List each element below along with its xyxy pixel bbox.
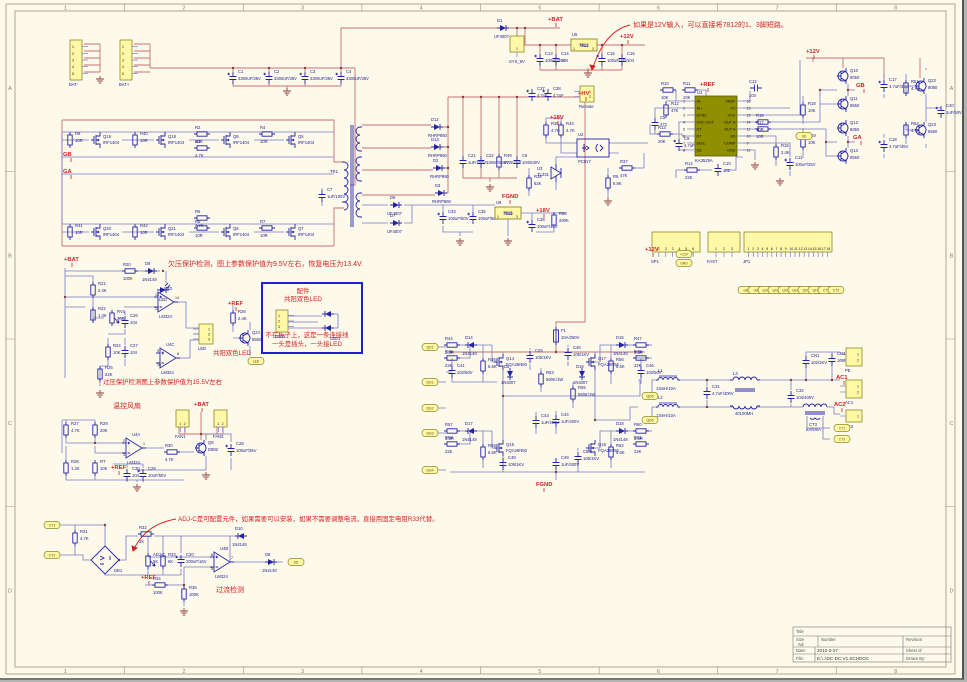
svg-text:R42: R42 <box>140 223 148 228</box>
component-r7[interactable]: R710R <box>259 219 275 238</box>
net-port-ct2[interactable]: CT2 <box>834 435 850 442</box>
component-r43[interactable]: R434.7K <box>559 121 575 138</box>
component-c10[interactable]: C10102 <box>715 161 732 176</box>
svg-text:R37: R37 <box>620 159 628 164</box>
svg-text:+12V: +12V <box>645 247 659 253</box>
net-label--12v[interactable]: +12V <box>620 34 634 44</box>
svg-text:PE: PE <box>845 368 851 373</box>
svg-text:2: 2 <box>123 439 125 443</box>
svg-text:C16: C16 <box>627 51 635 56</box>
svg-text:R61: R61 <box>634 435 642 440</box>
svg-text:C22: C22 <box>486 153 494 158</box>
component-q17[interactable]: Q17FQA28N50 <box>586 354 620 370</box>
component-l3[interactable]: L340100MH <box>730 371 760 416</box>
svg-text:7815: 7815 <box>503 211 513 216</box>
box-led1-label: LED1 <box>330 336 341 341</box>
ground-symbol <box>283 88 291 95</box>
net-labels-layer[interactable]: +BAT+12V+HV+REF+18VFGND+18V+12VGBGAGBGA+… <box>63 17 865 585</box>
component-c45[interactable]: C45105/1KV <box>565 345 590 360</box>
annotation-undervoltage-note: 欠压保护检测，图上参数保护值为9.5V左右，恢复电压为13.4V. <box>168 259 363 268</box>
svg-text:1N4148: 1N4148 <box>613 351 628 356</box>
svg-text:LED: LED <box>198 346 206 351</box>
component-c28[interactable]: C28100uF/35V <box>226 441 257 456</box>
component-l1[interactable]: L113mH/10A <box>656 368 680 391</box>
component-c14[interactable]: C14104 <box>553 51 570 66</box>
net-label--bat[interactable]: +BAT <box>64 257 79 267</box>
svg-text:+BAT: +BAT <box>548 17 563 23</box>
svg-text:C27: C27 <box>130 343 138 348</box>
svg-text:R18: R18 <box>808 101 816 106</box>
component-d16[interactable]: D161N4007 <box>573 364 588 385</box>
svg-text:4: 4 <box>762 247 764 251</box>
net-port-qg4[interactable]: QG4 <box>422 466 438 473</box>
svg-text:10K: 10K <box>808 140 816 145</box>
svg-text:C28: C28 <box>236 441 244 446</box>
component-r59[interactable]: R595.6K <box>481 443 497 460</box>
component-q19[interactable]: Q19IRF1404 <box>91 132 120 148</box>
svg-text:A: A <box>950 86 954 92</box>
svg-text:8550: 8550 <box>850 103 860 108</box>
net-port-ct2[interactable]: CT2 <box>44 551 60 558</box>
title-block: Title Size A2 Number Revision Date: 2012… <box>793 627 951 662</box>
svg-text:D15: D15 <box>616 335 624 340</box>
component-r41[interactable]: R4110R <box>68 223 84 240</box>
component-q13[interactable]: Q138550 <box>837 148 860 164</box>
component-adj-c[interactable]: ADJ-C5K <box>146 552 166 569</box>
svg-text:C40: C40 <box>946 103 954 108</box>
component-u4d[interactable]: U4DLM324131214 <box>154 286 179 319</box>
component-c35[interactable]: C35100uF/50V <box>468 209 499 224</box>
svg-text:13mH/10A: 13mH/10A <box>656 413 676 418</box>
svg-text:R45: R45 <box>445 349 453 354</box>
svg-text:2: 2 <box>683 107 685 111</box>
svg-text:2: 2 <box>184 422 186 426</box>
svg-text:1: 1 <box>683 100 685 104</box>
component-d14[interactable]: D141N4148 <box>462 335 477 356</box>
svg-text:10R: 10R <box>260 233 268 238</box>
component-d2[interactable]: D2RHRP860 <box>430 158 450 179</box>
component-r13[interactable]: R1320K <box>657 125 673 144</box>
component-d10[interactable]: D101N4148 <box>232 526 247 547</box>
component-d12[interactable]: D12RHRP860 <box>428 117 448 138</box>
component-r58[interactable]: R5822K <box>444 435 460 454</box>
svg-text:10R: 10R <box>140 230 148 235</box>
component-d13[interactable]: D13RHRP860 <box>428 137 448 158</box>
component-q7[interactable]: Q7IRF1404 <box>286 224 315 240</box>
component-c20[interactable]: C20100uF/16V <box>176 552 207 567</box>
svg-text:1: 1 <box>64 6 67 12</box>
component-c1[interactable]: C13300uF/35V <box>228 69 262 84</box>
component-d1[interactable]: D1UF4007 <box>494 18 510 39</box>
net-label--ref[interactable]: +REF <box>141 575 156 585</box>
component-r40[interactable]: R4010R <box>133 131 149 148</box>
component-q6[interactable]: Q6IRF1404 <box>221 224 250 240</box>
svg-text:BAT-: BAT- <box>69 82 79 87</box>
svg-text:4: 4 <box>122 65 124 69</box>
svg-text:SYS_9V: SYS_9V <box>509 59 525 64</box>
net-port-ct1[interactable]: CT1 <box>44 521 60 528</box>
svg-text:102/50V: 102/50V <box>457 370 473 375</box>
connector-fast[interactable]: 123FAST <box>707 232 740 264</box>
net-port-qg3[interactable]: QG3 <box>422 429 438 436</box>
svg-text:C48: C48 <box>508 455 516 460</box>
svg-text:VCC: VCC <box>727 114 735 118</box>
net-label-gb[interactable]: GB <box>63 152 72 162</box>
svg-text:C29: C29 <box>148 466 156 471</box>
svg-text:5: 5 <box>538 6 541 12</box>
components-layer[interactable]: C13300uF/35VC23300uF/35VC33300uF/35VC433… <box>64 18 962 602</box>
net-port-sd[interactable]: SD <box>288 558 304 565</box>
svg-text:AC1: AC1 <box>845 400 854 405</box>
net-label--bat[interactable]: +BAT <box>548 17 563 27</box>
svg-text:R47: R47 <box>634 336 642 341</box>
svg-text:C3: C3 <box>310 69 316 74</box>
svg-text:OSC OUT: OSC OUT <box>697 121 715 125</box>
svg-text:105/1KV: 105/1KV <box>535 355 551 360</box>
net-port-qd1[interactable]: QD1 <box>422 343 438 350</box>
svg-text:CN1: CN1 <box>811 353 820 358</box>
svg-text:IRF1404: IRF1404 <box>298 232 315 237</box>
tb-number-label: Number <box>821 637 836 642</box>
svg-text:OUT B: OUT B <box>724 121 736 125</box>
component-r15[interactable]: R152.4K <box>774 143 790 160</box>
svg-text:CT: CT <box>697 128 703 132</box>
connector-fan2[interactable]: 12FAN2 <box>213 410 227 439</box>
box-title: 配件 <box>297 286 310 295</box>
net-label--bat[interactable]: +BAT <box>194 402 209 412</box>
net-port-led[interactable]: LED <box>248 357 264 364</box>
svg-text:R40: R40 <box>140 131 148 136</box>
svg-text:2: 2 <box>222 422 224 426</box>
component-c11[interactable]: C11100uF/25V <box>785 155 816 170</box>
component-c30[interactable]: C30104 <box>124 466 141 481</box>
svg-text:R15: R15 <box>781 143 789 148</box>
component-d3[interactable]: D3RHRP860 <box>432 183 452 204</box>
svg-text:100uF/35V: 100uF/35V <box>236 448 257 453</box>
component-c12[interactable]: C12104 <box>749 79 762 98</box>
svg-text:QG4: QG4 <box>426 469 433 473</box>
component-r14[interactable]: R1422K <box>684 161 700 180</box>
annotation-12v-note: 如果是12V输入，可以直接将7812的1、3脚短路。 <box>633 20 788 29</box>
component-r50[interactable]: R50200K <box>552 211 569 228</box>
component-q20[interactable]: Q20IRF1404 <box>91 224 120 240</box>
pwm-controller-ic[interactable]: U1KA3525AIN-1IN+2SYNC3OSC OUT4CT5RT6DISC… <box>683 90 751 163</box>
component-r37[interactable]: R3747K <box>619 159 635 178</box>
component-q10[interactable]: Q108050 <box>837 68 860 84</box>
svg-text:UF4007: UF4007 <box>387 229 403 234</box>
svg-text:12: 12 <box>155 307 159 311</box>
component-f1[interactable]: F110A/250V <box>554 327 580 345</box>
component-r46[interactable]: R465.6K <box>481 357 497 374</box>
svg-text:+BAT: +BAT <box>64 257 79 263</box>
component-q12[interactable]: Q128050 <box>837 120 860 136</box>
net-label--12v[interactable]: +12V <box>806 49 820 59</box>
component-r32[interactable]: R322K <box>138 525 154 544</box>
component-c27[interactable]: C27104 <box>122 343 139 358</box>
component-c38[interactable]: C384.7uF <box>543 86 565 101</box>
svg-text:Q9: Q9 <box>208 440 214 445</box>
svg-text:1N4148: 1N4148 <box>262 568 277 573</box>
component-c29[interactable]: C2910uF/50V <box>138 466 167 481</box>
svg-text:R25: R25 <box>105 365 113 370</box>
component-c40[interactable]: C401uF/50V <box>936 103 963 118</box>
net-port-qg2[interactable]: QG2 <box>422 404 438 411</box>
component-r27[interactable]: R274.7K <box>64 421 80 438</box>
svg-text:100uF/50V: 100uF/50V <box>448 216 469 221</box>
svg-text:8550: 8550 <box>252 337 262 342</box>
tb-revision-label: Revision <box>906 637 923 642</box>
svg-text:104: 104 <box>561 58 569 63</box>
svg-text:6: 6 <box>683 135 685 139</box>
component-r53[interactable]: R53560K/1W <box>539 370 563 387</box>
svg-text:C20: C20 <box>186 552 194 557</box>
net-label-ga[interactable]: GA <box>853 135 863 145</box>
component-r38[interactable]: R3862K <box>527 174 543 191</box>
component-c31[interactable]: C314.7uF/400V <box>704 384 734 399</box>
net-port-qg1[interactable]: QG1 <box>422 378 438 385</box>
svg-text:1: 1 <box>857 353 859 357</box>
svg-text:104: 104 <box>749 93 757 98</box>
component-r24[interactable]: R2410K <box>106 343 122 360</box>
component-q14[interactable]: Q14FQA28N50 <box>494 354 528 370</box>
component-q24[interactable]: Q248550 <box>239 330 262 346</box>
svg-text:L1: L1 <box>658 368 663 373</box>
component-r18[interactable]: R1810K <box>801 101 817 118</box>
svg-text:6: 6 <box>657 6 660 12</box>
component-d15[interactable]: D151N4148 <box>613 335 628 356</box>
component-r61[interactable]: R6122K <box>633 435 649 454</box>
svg-text:17: 17 <box>822 247 826 251</box>
component-c25[interactable]: C25105/1KV <box>527 348 552 363</box>
svg-text:BAT+: BAT+ <box>119 82 130 87</box>
component-r9[interactable]: R910R <box>68 131 83 148</box>
svg-text:VC: VC <box>730 107 736 111</box>
svg-text:10R: 10R <box>75 138 83 143</box>
ic-ka3525a[interactable]: U1KA3525AIN-1IN+2SYNC3OSC OUT4CT5RT6DISC… <box>683 90 751 163</box>
svg-text:2: 2 <box>72 52 74 56</box>
svg-text:Q17: Q17 <box>598 356 607 361</box>
svg-text:10: 10 <box>789 247 793 251</box>
svg-text:Q13: Q13 <box>850 148 859 153</box>
component-q16[interactable]: Q16FQA28N50 <box>586 440 620 456</box>
ground-symbol <box>456 238 464 245</box>
component-u5[interactable]: U57812781213 <box>571 32 597 51</box>
connector-fan1[interactable]: 12FAN1 <box>175 410 189 439</box>
tb-date-value: 2012-3-27 <box>817 648 838 653</box>
svg-text:D882: D882 <box>208 447 219 452</box>
schematic-editor-canvas: 1122334455667788AABBCCDD 配件 共阳双色LED 不在板子… <box>0 0 967 682</box>
svg-text:R8: R8 <box>613 174 619 179</box>
component-c7[interactable]: C71uF/100V <box>319 187 346 202</box>
svg-text:14: 14 <box>175 296 179 300</box>
component-l2[interactable]: L213mH/10A <box>656 395 680 418</box>
svg-text:GB: GB <box>856 83 865 89</box>
svg-text:1N4148: 1N4148 <box>232 542 247 547</box>
svg-text:1uF/400V: 1uF/400V <box>561 419 579 424</box>
net-port-qd6[interactable]: QD6 <box>642 416 658 423</box>
component-r21[interactable]: R212.4K <box>91 281 107 298</box>
connector-remote[interactable]: 12Remote <box>574 86 594 109</box>
svg-text:104: 104 <box>132 473 140 478</box>
net-label-ac2[interactable]: AC2 <box>834 402 846 412</box>
svg-text:2: 2 <box>857 391 859 395</box>
net-port--12v[interactable]: +12V <box>676 250 692 257</box>
svg-text:3: 3 <box>301 669 304 675</box>
svg-text:Q5: Q5 <box>298 134 304 139</box>
svg-text:15: 15 <box>812 247 816 251</box>
svg-text:10uF/50V: 10uF/50V <box>148 473 166 478</box>
svg-text:8550: 8550 <box>850 155 860 160</box>
svg-text:6: 6 <box>211 553 213 557</box>
svg-text:SD: SD <box>294 561 299 565</box>
svg-text:U4C: U4C <box>166 342 174 347</box>
svg-text:F1: F1 <box>561 328 567 333</box>
svg-text:2: 2 <box>182 6 185 12</box>
component-u2[interactable]: U2PC817 <box>577 132 609 164</box>
svg-text:D: D <box>8 588 12 594</box>
component-q18[interactable]: Q18IRF1404 <box>156 132 185 148</box>
net-port-ct1[interactable]: CT1 <box>834 424 850 431</box>
svg-text:Q22: Q22 <box>928 78 937 83</box>
net-port-qd5[interactable]: QD5 <box>642 392 658 399</box>
component-d8[interactable]: D81N4148 <box>262 552 277 573</box>
net-label--12v[interactable]: +12V <box>645 247 659 257</box>
net-label-ga[interactable]: GA <box>63 169 73 179</box>
svg-text:LM324: LM324 <box>215 574 228 579</box>
component-c32[interactable]: C32104/400V <box>788 388 815 403</box>
connector-bat-[interactable]: 12345BAT+ <box>119 40 138 87</box>
component-r55[interactable]: R55560K/1W <box>571 385 595 402</box>
component-c16[interactable]: C16104 <box>619 51 636 66</box>
component-r31[interactable]: R314.7K <box>73 529 89 546</box>
component-c50[interactable]: C50105/1KV <box>575 449 600 464</box>
svg-text:FQA28N50: FQA28N50 <box>598 448 620 453</box>
svg-text:1N4148: 1N4148 <box>142 277 157 282</box>
component-c33[interactable]: C33100uF/50V <box>438 209 469 224</box>
component-d17[interactable]: D171N4148 <box>462 421 477 442</box>
svg-text:12: 12 <box>747 149 751 153</box>
ground-symbol <box>180 608 188 615</box>
svg-text:10R: 10R <box>75 230 83 235</box>
svg-text:10K: 10K <box>661 95 669 100</box>
component-r28[interactable]: R281.2K <box>64 459 80 476</box>
component-c43[interactable]: C431uF/400V <box>533 413 560 428</box>
svg-text:4.7K: 4.7K <box>71 428 80 433</box>
component-u4c[interactable]: U4CLM3249108 <box>156 342 180 375</box>
component-u4a[interactable]: U4ALM324231 <box>122 432 146 465</box>
connector-jp1[interactable]: 123456789101112131415161718JP1 <box>743 232 832 264</box>
ground-symbol <box>504 238 512 245</box>
component-u6[interactable]: U67815781513 <box>495 200 521 219</box>
component-r10[interactable]: R1010K <box>660 81 676 100</box>
schematic-sheet[interactable]: 1122334455667788AABBCCDD 配件 共阳双色LED 不在板子… <box>0 0 964 680</box>
svg-text:C31: C31 <box>712 384 720 389</box>
net-port-sd[interactable]: SD <box>796 132 812 139</box>
component-c49[interactable]: C491uF/400V <box>553 455 580 470</box>
component-r12[interactable]: R1247K <box>664 101 680 118</box>
component-c3[interactable]: C33300uF/35V <box>300 69 334 84</box>
connector-bat-[interactable]: 12345BAT- <box>69 40 88 87</box>
svg-text:R14: R14 <box>685 161 693 166</box>
svg-text:DISC: DISC <box>697 142 706 146</box>
svg-text:4: 4 <box>420 669 423 675</box>
net-port-ct2[interactable]: CT2 <box>828 286 844 293</box>
component-u3[interactable]: U3TL431 <box>537 164 561 182</box>
svg-text:1: 1 <box>748 247 750 251</box>
component-rt[interactable]: RT10K <box>93 459 108 476</box>
component-r4[interactable]: R410R <box>259 125 275 144</box>
svg-text:8050: 8050 <box>850 75 860 80</box>
component-tr1[interactable]: TR1 <box>330 125 362 227</box>
svg-text:R21: R21 <box>98 281 106 286</box>
svg-text:U4A: U4A <box>132 432 140 437</box>
net-label-gb[interactable]: GB <box>856 83 865 93</box>
svg-text:R11: R11 <box>683 81 691 86</box>
svg-text:DB1: DB1 <box>114 568 123 573</box>
svg-text:C10: C10 <box>723 161 731 166</box>
svg-text:8550: 8550 <box>928 129 938 134</box>
component-d18[interactable]: D181N4148 <box>613 421 628 442</box>
svg-text:R31: R31 <box>80 529 88 534</box>
component-r39[interactable]: R394.7K <box>544 121 560 138</box>
svg-text:2.4K: 2.4K <box>781 150 790 155</box>
svg-text:R6: R6 <box>195 219 201 224</box>
component-c2[interactable]: C23300uF/35V <box>264 69 298 84</box>
net-label-fgnd[interactable]: FGND <box>502 194 518 204</box>
svg-text:C4: C4 <box>346 69 352 74</box>
connector-sys-9v[interactable]: 1SYS_9V <box>509 36 525 64</box>
component-c4[interactable]: C43300uF/35V <box>336 69 370 84</box>
component-r35[interactable]: R35100K <box>182 585 199 602</box>
component-q21[interactable]: Q21IRF1404 <box>156 224 185 240</box>
component-q5[interactable]: Q5IRF1404 <box>286 132 315 148</box>
component-r20[interactable]: R20100K <box>122 262 138 281</box>
svg-text:R44: R44 <box>445 336 453 341</box>
ground-symbol <box>584 70 592 77</box>
component-d9[interactable]: D91N4148 <box>142 261 157 282</box>
component-q8[interactable]: Q8IRF1404 <box>221 132 250 148</box>
svg-text:1: 1 <box>143 442 145 446</box>
component-d7[interactable]: D7UF4007 <box>387 213 403 234</box>
svg-text:20K: 20K <box>658 139 666 144</box>
svg-text:3: 3 <box>278 325 280 329</box>
net-label-fgnd[interactable]: FGND <box>536 482 552 492</box>
component-q11[interactable]: Q118550 <box>837 96 860 112</box>
svg-text:D5: D5 <box>504 364 510 369</box>
svg-text:1N4007: 1N4007 <box>573 380 588 385</box>
component-c36[interactable]: C36100uF/35V <box>527 217 558 232</box>
component-q15[interactable]: Q15FQA28N50 <box>494 440 528 456</box>
svg-text:10K: 10K <box>100 466 108 471</box>
svg-text:7: 7 <box>775 247 777 251</box>
component-q9[interactable]: Q9D882 <box>195 440 219 456</box>
svg-text:12: 12 <box>799 247 803 251</box>
net-port-gnd[interactable]: GND <box>676 259 692 266</box>
component-c18[interactable]: C184.7uF/35V <box>879 137 909 152</box>
svg-text:2.4K: 2.4K <box>98 288 107 293</box>
component-r29[interactable]: R2920K <box>93 421 109 438</box>
component-r30[interactable]: R304.7K <box>164 443 180 462</box>
component-r6[interactable]: R610R <box>194 219 210 238</box>
ground-symbol <box>96 76 104 83</box>
component-r26[interactable]: R262.4K <box>231 309 247 326</box>
component-r33[interactable]: R335K <box>161 552 177 569</box>
svg-text:QD6: QD6 <box>647 419 654 423</box>
svg-text:105/1KV: 105/1KV <box>573 352 589 357</box>
component-r42[interactable]: R4210R <box>133 223 149 240</box>
svg-text:D9: D9 <box>145 261 151 266</box>
svg-text:10R: 10R <box>756 134 764 139</box>
